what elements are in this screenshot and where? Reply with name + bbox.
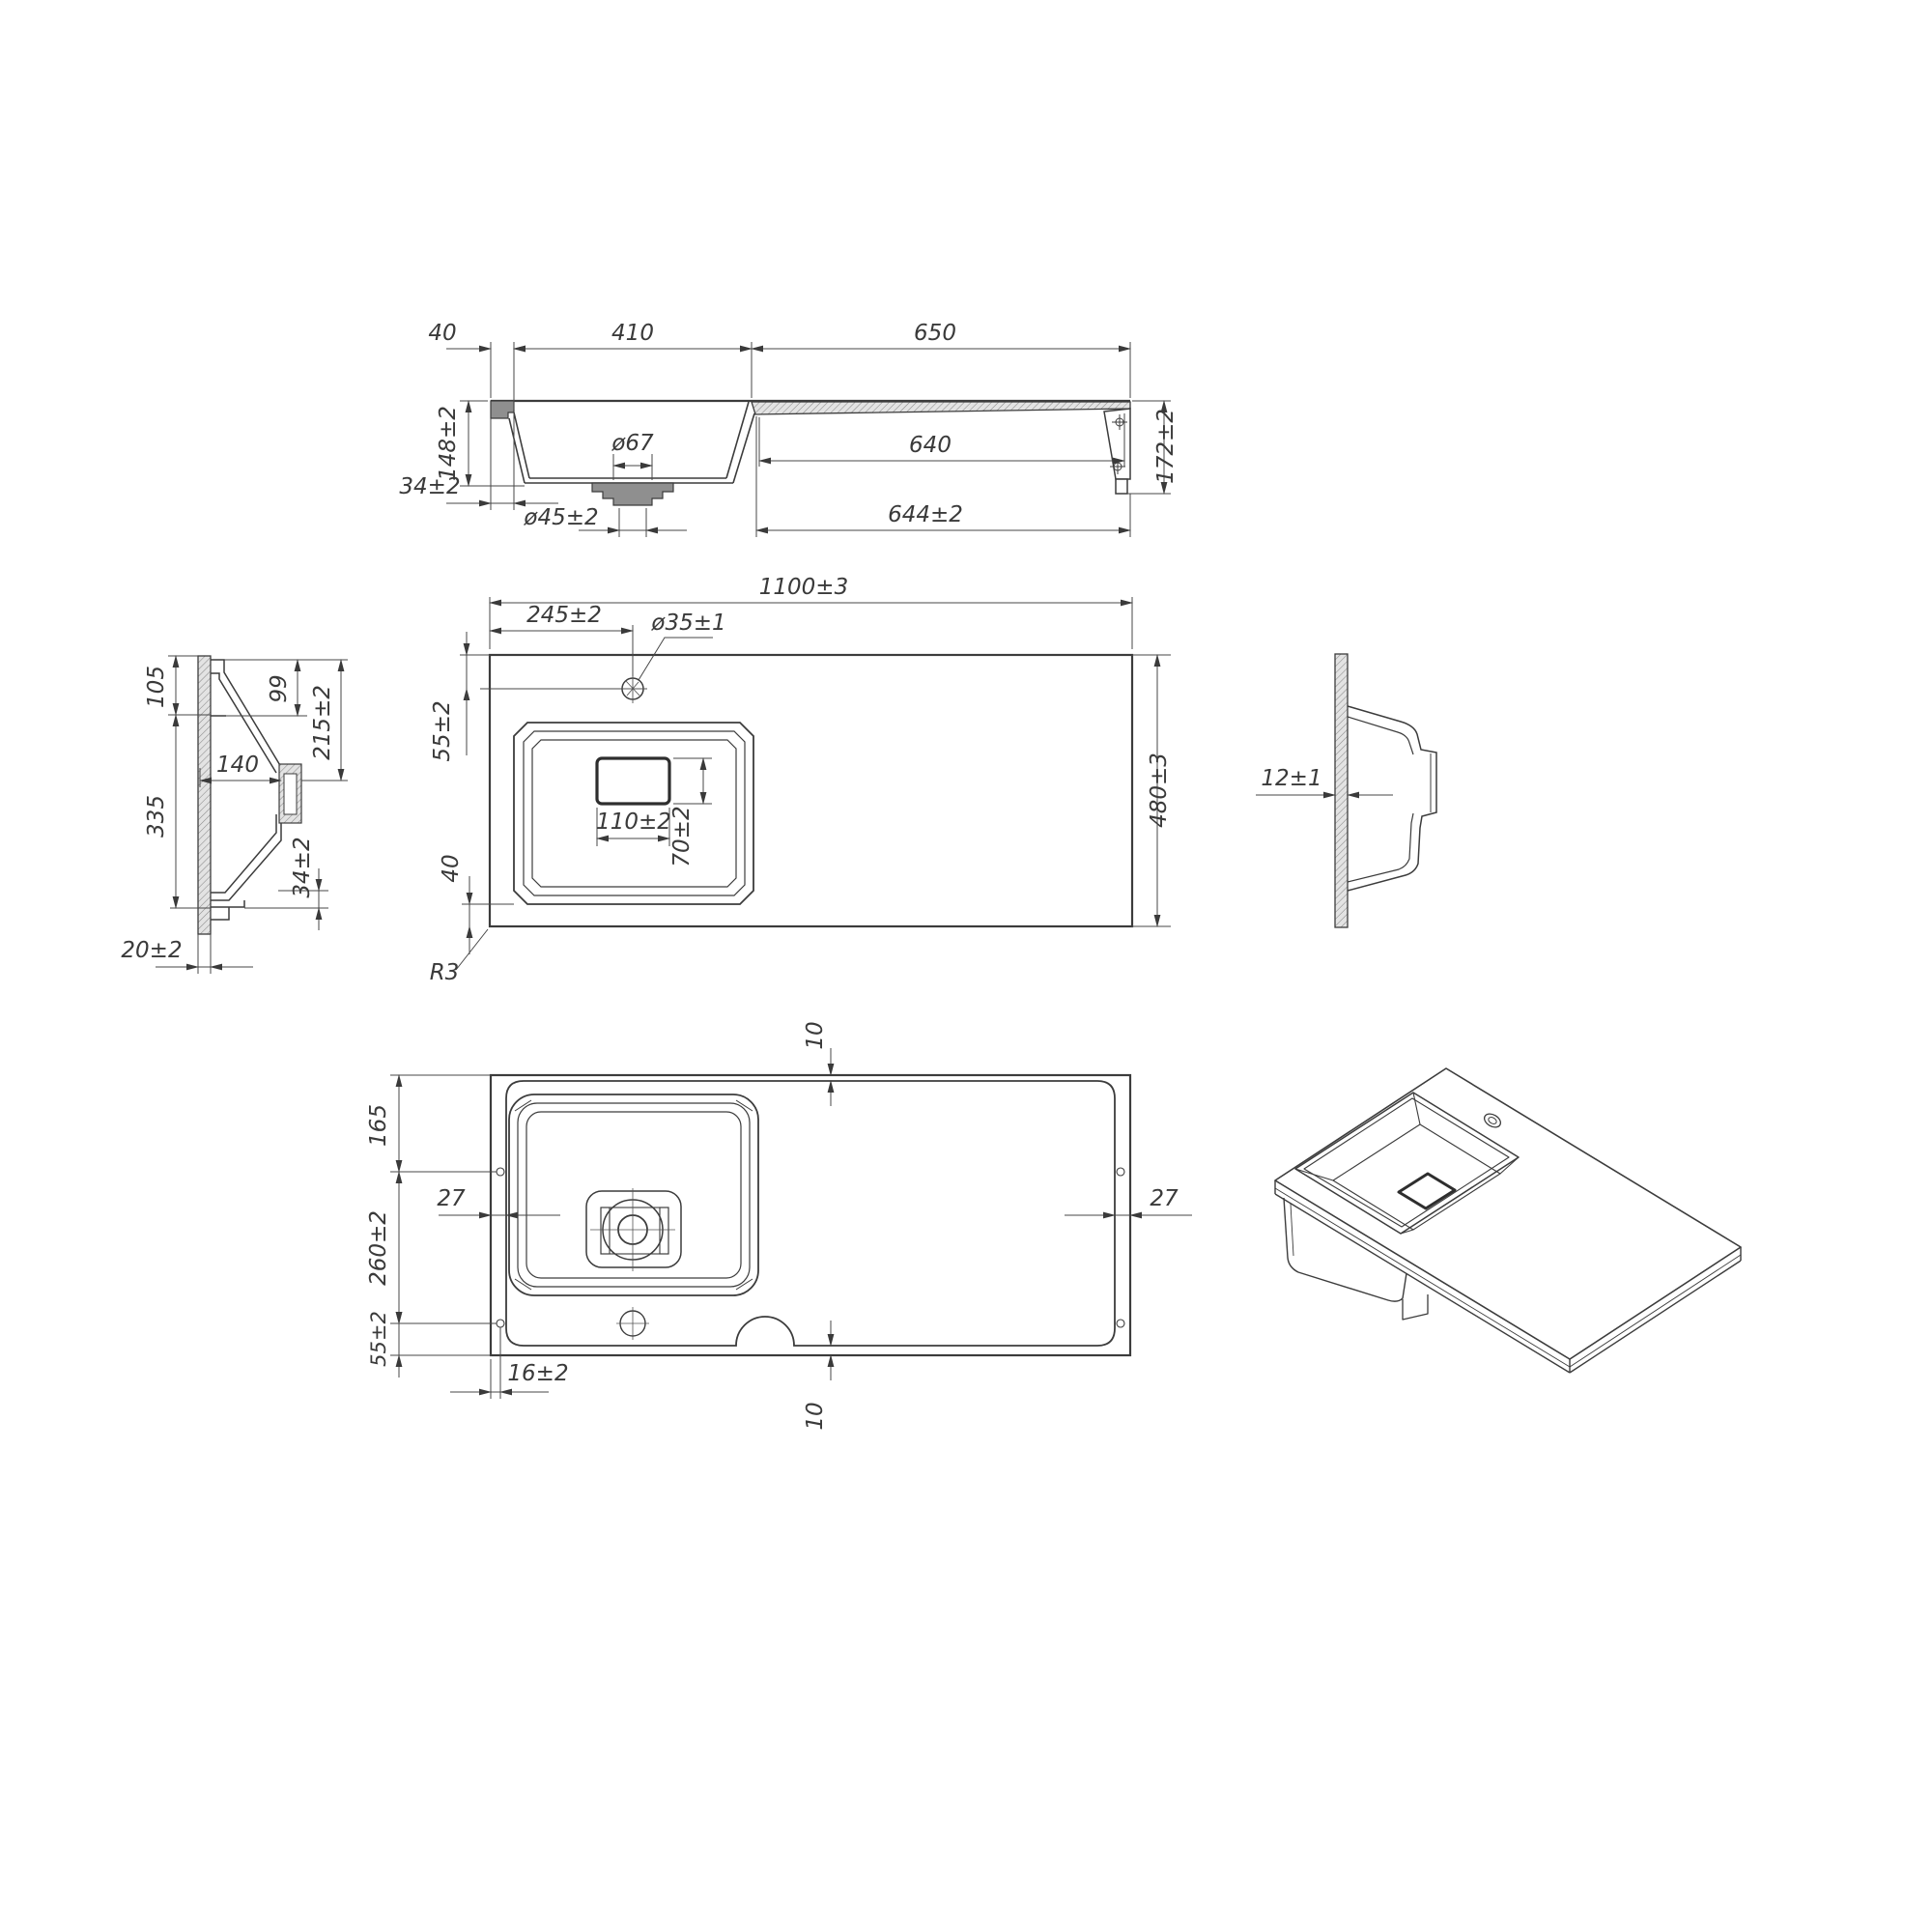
dim-label-bowl-width: 410 — [611, 321, 654, 346]
dim-label-bowl-depth: 148±2 — [436, 406, 461, 481]
dim-label-bowl-inner-depth: 140 — [216, 753, 259, 778]
plan-outline — [490, 655, 1132, 926]
isometric-view — [1275, 1068, 1741, 1373]
dim-label-faucet-hole-dia: ø35±1 — [650, 611, 725, 636]
front-dimensions: 40 410 650 148±2 34±2 ø67 ø45±2 — [399, 321, 1179, 537]
dim-label-hole-offset-top: 165 — [366, 1104, 391, 1147]
dim-label-hole-offset-bottom: 55±2 — [367, 1311, 390, 1367]
iso-slab-thickness — [1275, 1180, 1741, 1373]
dim-label-faucet-offset-y: 55±2 — [430, 700, 455, 761]
dim-label-top-thickness: 12±1 — [1261, 766, 1321, 791]
top-plan-view: 1100±3 245±2 ø35±1 55±2 110±2 70±2 — [430, 575, 1172, 985]
bottom-view: 165 260±2 55±2 16±2 27 27 10 — [366, 1021, 1192, 1430]
dim-label-panel-thickness: 20±2 — [121, 938, 182, 963]
dim-label-overall-depth: 480±3 — [1147, 753, 1172, 828]
dim-label-bowl-opening-depth: 335 — [144, 795, 169, 838]
dim-label-drainboard-outer: 644±2 — [888, 502, 963, 527]
dim-label-rim-inset-right: 27 — [1150, 1186, 1179, 1211]
dim-label-drain-cutout-depth: 70±2 — [669, 806, 695, 867]
right-panel-section — [1335, 654, 1348, 927]
drainboard-section — [752, 402, 1130, 414]
side-drain-flange-inner — [284, 774, 297, 814]
iso-faucet-hole — [1482, 1111, 1503, 1129]
dim-label-bottom-wall: 34±2 — [290, 837, 315, 897]
dim-label-hole-spacing: 260±2 — [366, 1210, 391, 1286]
front-edge-section — [491, 401, 514, 418]
dim-label-rim-inset-left: 27 — [437, 1186, 466, 1211]
right-side-view: 12±1 — [1256, 654, 1436, 927]
dim-label-overall-length: 1100±3 — [759, 575, 848, 600]
dim-label-rim-inset-bottom: 10 — [803, 1402, 828, 1430]
side-right-dimensions: 12±1 — [1256, 766, 1393, 795]
dim-label-corner-radius: R3 — [430, 960, 460, 985]
left-side-section-view: 105 99 215±2 140 335 34±2 — [121, 656, 348, 974]
dim-label-rim-height: 105 — [144, 666, 169, 708]
dim-label-overall-height: 172±2 — [1153, 409, 1179, 484]
dim-label-drainboard-width: 650 — [914, 321, 956, 346]
plan-drain-cutout — [597, 758, 669, 804]
bracket-foot — [1116, 479, 1127, 494]
drawing-sheet: 40 410 650 148±2 34±2 ø67 ø45±2 — [0, 0, 1932, 1932]
drain-boss-section — [592, 483, 673, 505]
dim-label-bowl-front-margin: 40 — [439, 854, 464, 882]
drawing-canvas: 40 410 650 148±2 34±2 ø67 ø45±2 — [0, 0, 1932, 1932]
dim-label-drain-top-dia: ø67 — [611, 431, 654, 456]
iso-countertop-face — [1275, 1068, 1741, 1359]
dim-label-edge-step: 34±2 — [399, 474, 460, 499]
dim-label-rim-inset-top: 10 — [803, 1021, 828, 1049]
dim-label-drainboard-inner: 640 — [909, 433, 952, 458]
dim-label-faucet-offset-x: 245±2 — [526, 603, 602, 628]
dim-label-edge-width: 40 — [428, 321, 456, 346]
front-section-view: 40 410 650 148±2 34±2 ø67 ø45±2 — [399, 321, 1179, 537]
dim-label-drain-bottom-dia: ø45±2 — [523, 505, 598, 530]
dim-label-rim-inner-height: 99 — [267, 674, 292, 702]
side-panel-section — [198, 656, 211, 934]
dim-label-hole-offset-left: 16±2 — [507, 1361, 568, 1386]
right-bowl-profile — [1348, 706, 1436, 891]
dim-label-drain-cutout-width: 110±2 — [596, 810, 671, 835]
dim-label-drain-center-depth: 215±2 — [310, 685, 335, 760]
